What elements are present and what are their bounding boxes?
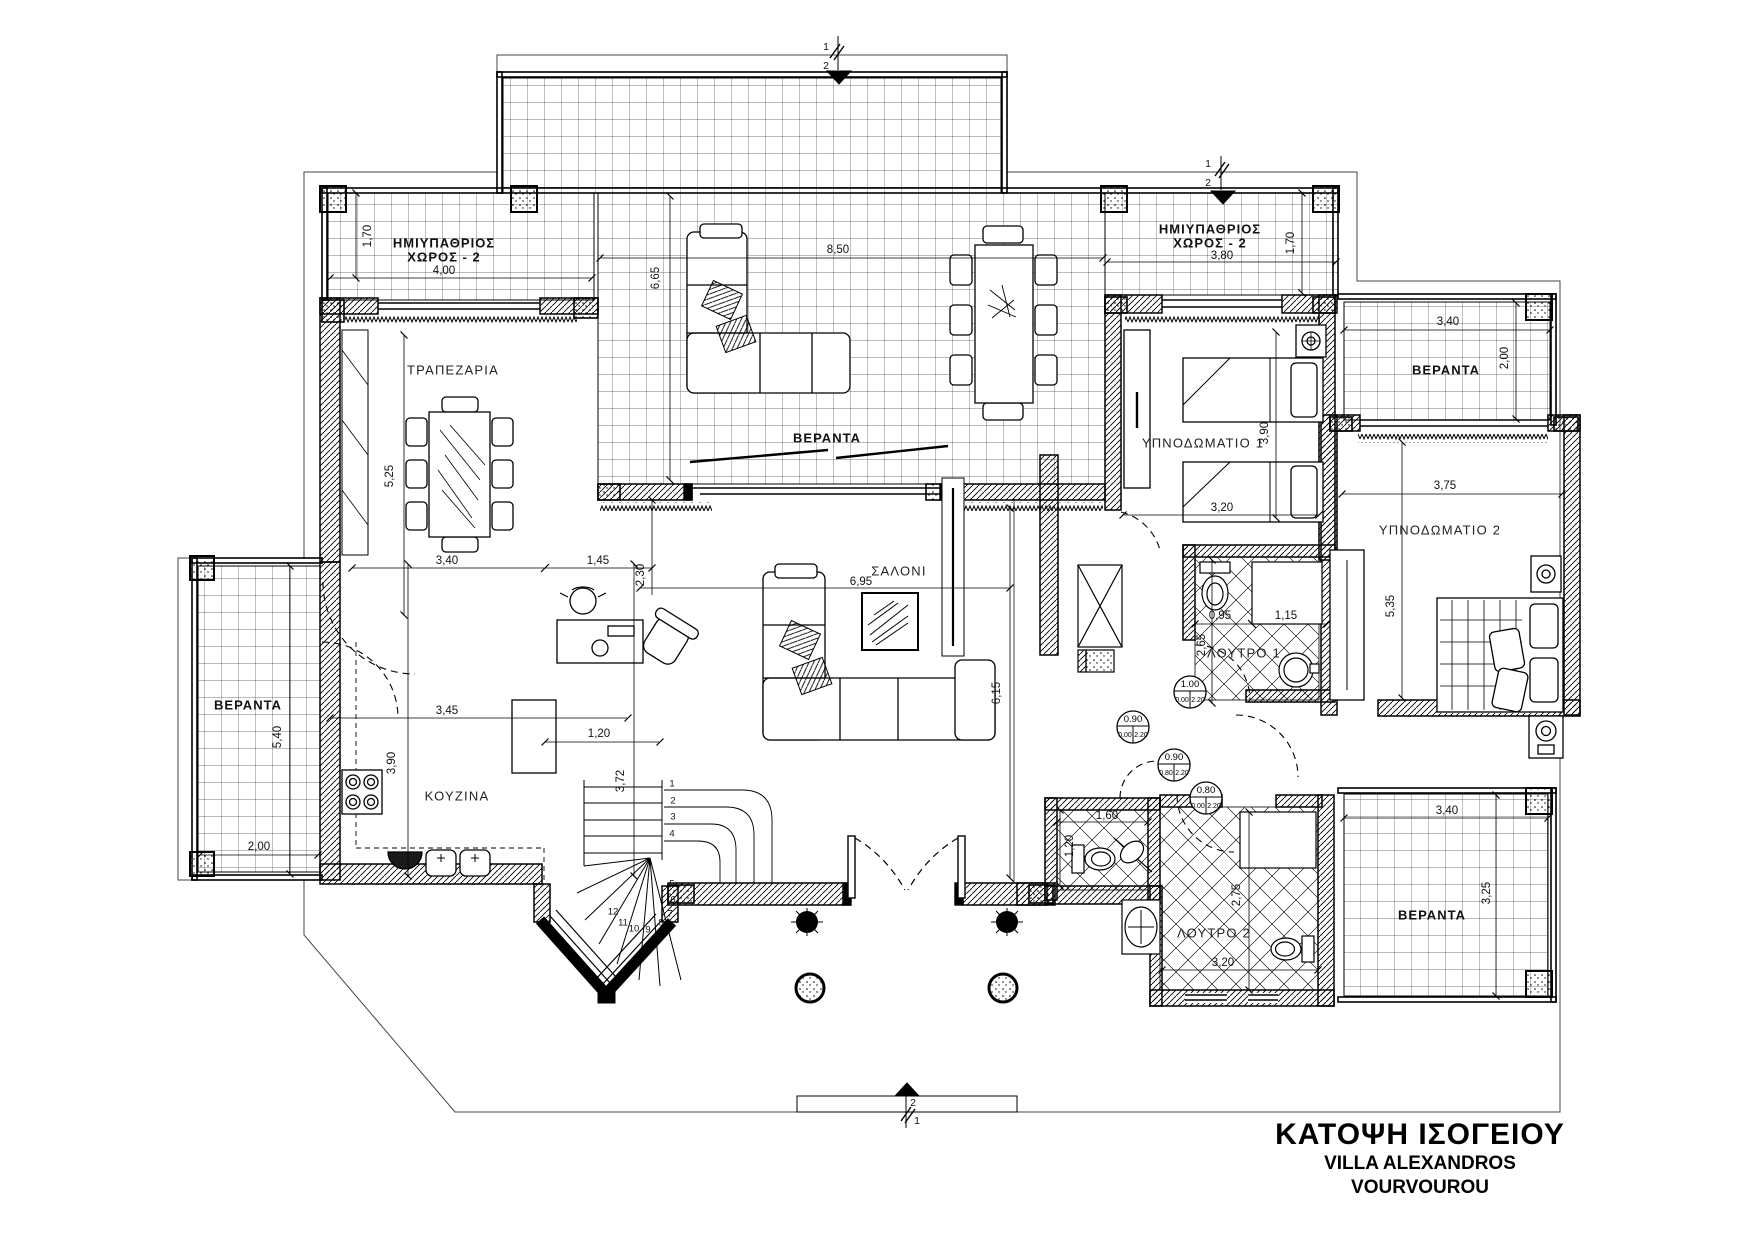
tile-area-veranda-bottom-right [1344, 794, 1548, 996]
loutro2-toilet-tank [1302, 936, 1314, 962]
kitchen-island [512, 700, 556, 773]
wall-dining-west [320, 298, 340, 562]
porch-column-right [989, 974, 1017, 1002]
wall-salon-east [1040, 455, 1058, 655]
title-block: ΚΑΤΟΨΗ ΙΣΟΓΕΙΟΥ VILLA ALEXANDROS VOURVOU… [1255, 1118, 1585, 1200]
bedroom1-furniture [1124, 325, 1326, 522]
svg-text:2.20: 2.20 [1175, 770, 1189, 777]
kitchen-furniture [342, 587, 700, 876]
tile-area-veranda-left [198, 566, 320, 872]
wall-loutro2-east [1318, 795, 1334, 1006]
floor-plan-canvas: 1.000.002.200.900.002.200.900.802.200.80… [0, 0, 1755, 1240]
pot [570, 588, 596, 614]
wall-kitchen-west [320, 562, 340, 880]
svg-text:0.00: 0.00 [1118, 732, 1132, 739]
kitchen-sink-right [460, 850, 490, 876]
tile-area-top-bump [503, 78, 1001, 193]
veranda-sofa-bottom-wing [687, 333, 850, 393]
porch-column-left [796, 974, 824, 1002]
svg-text:2.20: 2.20 [1134, 732, 1148, 739]
svg-text:0.00: 0.00 [1191, 803, 1205, 810]
veranda-dining-table [975, 245, 1033, 403]
office-chair [635, 606, 700, 670]
tile-area-hmiyp-right [1105, 193, 1338, 295]
svg-text:1.00: 1.00 [1181, 679, 1200, 690]
svg-text:0.00: 0.00 [1175, 697, 1189, 704]
tile-area-hmiyp-left [328, 193, 594, 300]
salon-furniture [763, 478, 995, 740]
door-size-tag: 1.000.002.20 [1174, 676, 1206, 708]
floor-plan-drawing: 1.000.002.200.900.002.200.900.802.200.80… [0, 0, 1755, 1240]
salon-rug [862, 593, 918, 650]
svg-text:0.90: 0.90 [1124, 714, 1143, 725]
tile-area-veranda-top-right [1344, 302, 1550, 420]
wall-loutro1-north [1183, 545, 1335, 557]
porch-plants [791, 908, 1023, 1002]
hall-closet [1078, 565, 1122, 672]
project-location: VOURVOUROU [1255, 1176, 1585, 1200]
loutro1-toilet-tank [1200, 562, 1230, 573]
door-size-tag: 0.900.002.20 [1117, 711, 1149, 743]
svg-text:0.90: 0.90 [1165, 752, 1184, 763]
bedroom2-furniture [1330, 550, 1563, 758]
svg-text:0.80: 0.80 [1159, 770, 1173, 777]
wall-bedroom2-east [1564, 415, 1580, 715]
door-size-tag: 0.900.802.20 [1158, 749, 1190, 781]
wall-bedroom1-west [1105, 295, 1121, 510]
door-size-tag: 0.800.002.20 [1190, 782, 1222, 814]
entrance-double-door [848, 836, 965, 898]
wc-toilet-tank [1072, 845, 1084, 873]
kitchen-sink-left [426, 850, 456, 876]
wall-loutro2-south [1150, 990, 1334, 1006]
wall-entrance-left [668, 883, 850, 905]
svg-text:2.20: 2.20 [1191, 697, 1205, 704]
dining-room-furniture [342, 330, 513, 555]
svg-text:2.20: 2.20 [1207, 803, 1221, 810]
project-name: VILLA ALEXANDROS [1255, 1152, 1585, 1176]
drawing-title: ΚΑΤΟΨΗ ΙΣΟΓΕΙΟΥ [1255, 1118, 1585, 1152]
wall-salon-north-right [948, 484, 1105, 500]
svg-text:0.80: 0.80 [1197, 785, 1216, 796]
